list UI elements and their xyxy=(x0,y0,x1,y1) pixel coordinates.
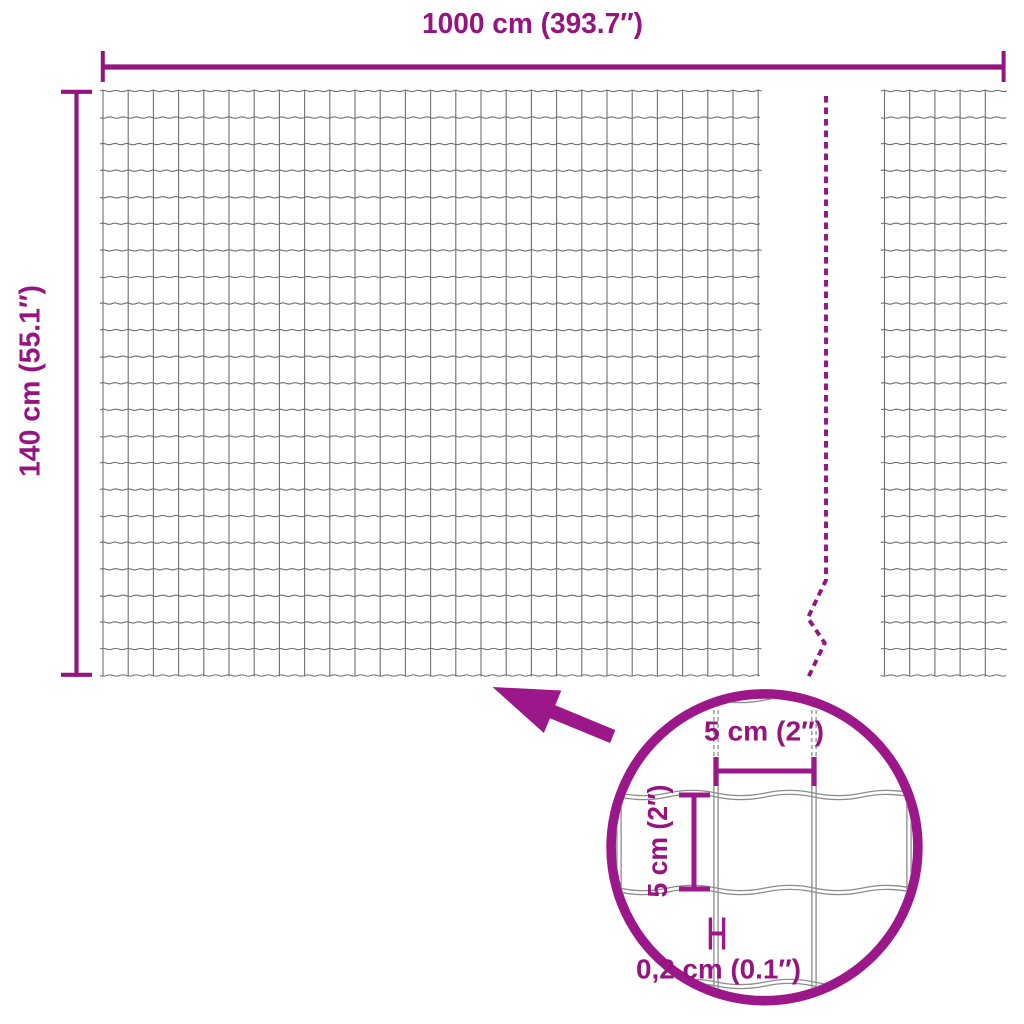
svg-text:5 cm (2″): 5 cm (2″) xyxy=(642,785,673,898)
svg-text:140 cm (55.1″): 140 cm (55.1″) xyxy=(15,285,47,477)
svg-text:1000 cm (393.7″): 1000 cm (393.7″) xyxy=(422,8,643,40)
svg-text:5 cm (2″): 5 cm (2″) xyxy=(704,716,824,747)
svg-text:0,2 cm (0.1″): 0,2 cm (0.1″) xyxy=(636,954,801,985)
